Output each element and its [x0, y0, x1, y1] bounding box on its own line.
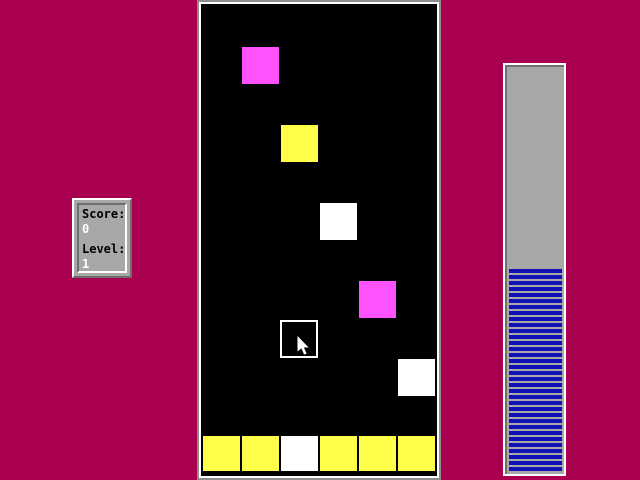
bottom-row-block[interactable]	[203, 436, 240, 471]
bottom-row-block[interactable]	[359, 436, 396, 471]
game-screen: Score: 0 Level: 1	[0, 0, 640, 480]
falling-block[interactable]	[320, 203, 357, 240]
score-panel-frame: Score: 0 Level: 1	[77, 203, 127, 273]
falling-block[interactable]	[242, 47, 279, 84]
score-panel: Score: 0 Level: 1	[72, 198, 132, 278]
bottom-row-block[interactable]	[320, 436, 357, 471]
level-value: 1	[82, 257, 122, 272]
playfield-area[interactable]	[199, 2, 439, 478]
mouse-cursor-icon	[297, 336, 310, 356]
playfield	[197, 0, 441, 480]
score-value: 0	[82, 222, 122, 237]
score-label: Score:	[82, 207, 122, 222]
progress-fill	[509, 269, 562, 473]
level-label: Level:	[82, 242, 122, 257]
progress-track	[505, 65, 564, 474]
falling-block[interactable]	[359, 281, 396, 318]
falling-block[interactable]	[281, 125, 318, 162]
bottom-row-block[interactable]	[281, 436, 318, 471]
bottom-row-block[interactable]	[398, 436, 435, 471]
falling-block[interactable]	[398, 359, 435, 396]
bottom-row-block[interactable]	[242, 436, 279, 471]
level-progress-bar	[503, 63, 566, 476]
